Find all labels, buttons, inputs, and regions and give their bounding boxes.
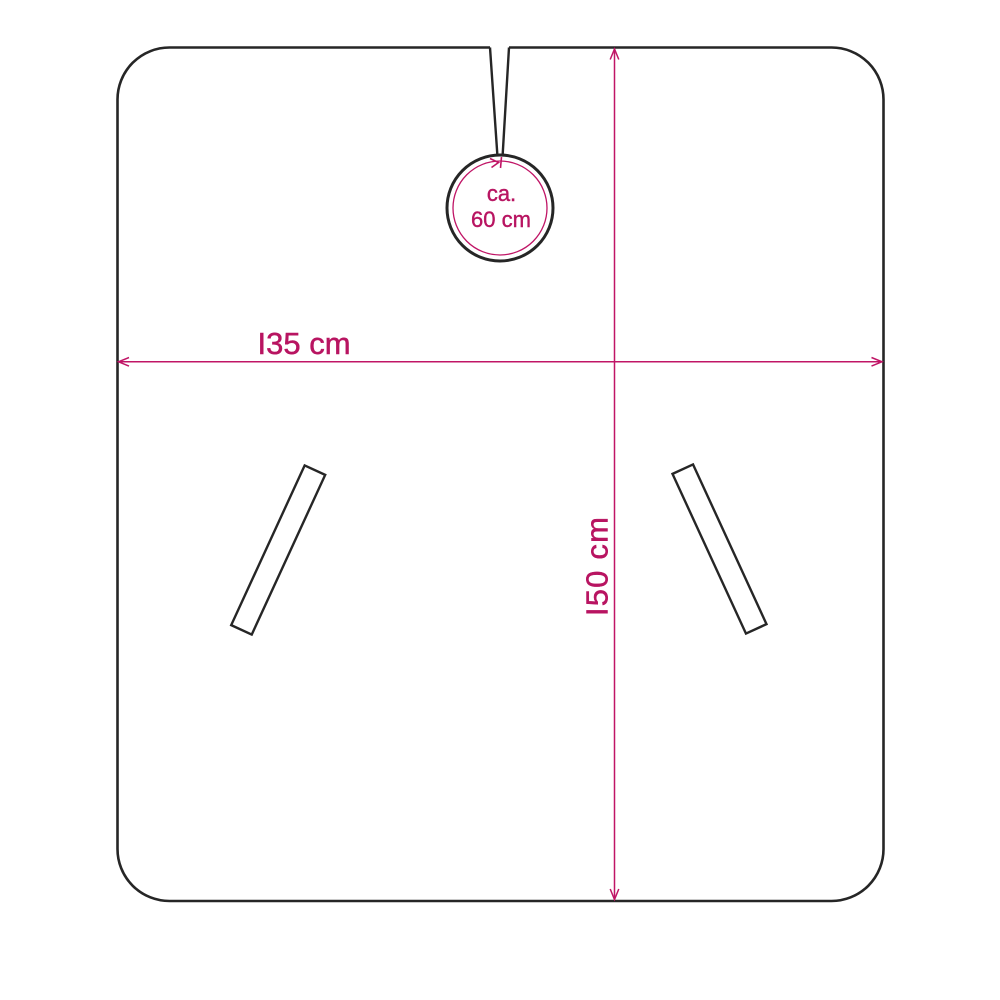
- svg-text:I50 cm: I50 cm: [580, 516, 615, 616]
- svg-text:60 cm: 60 cm: [471, 207, 531, 232]
- svg-text:ca.: ca.: [487, 181, 516, 206]
- svg-text:I35 cm: I35 cm: [257, 326, 350, 361]
